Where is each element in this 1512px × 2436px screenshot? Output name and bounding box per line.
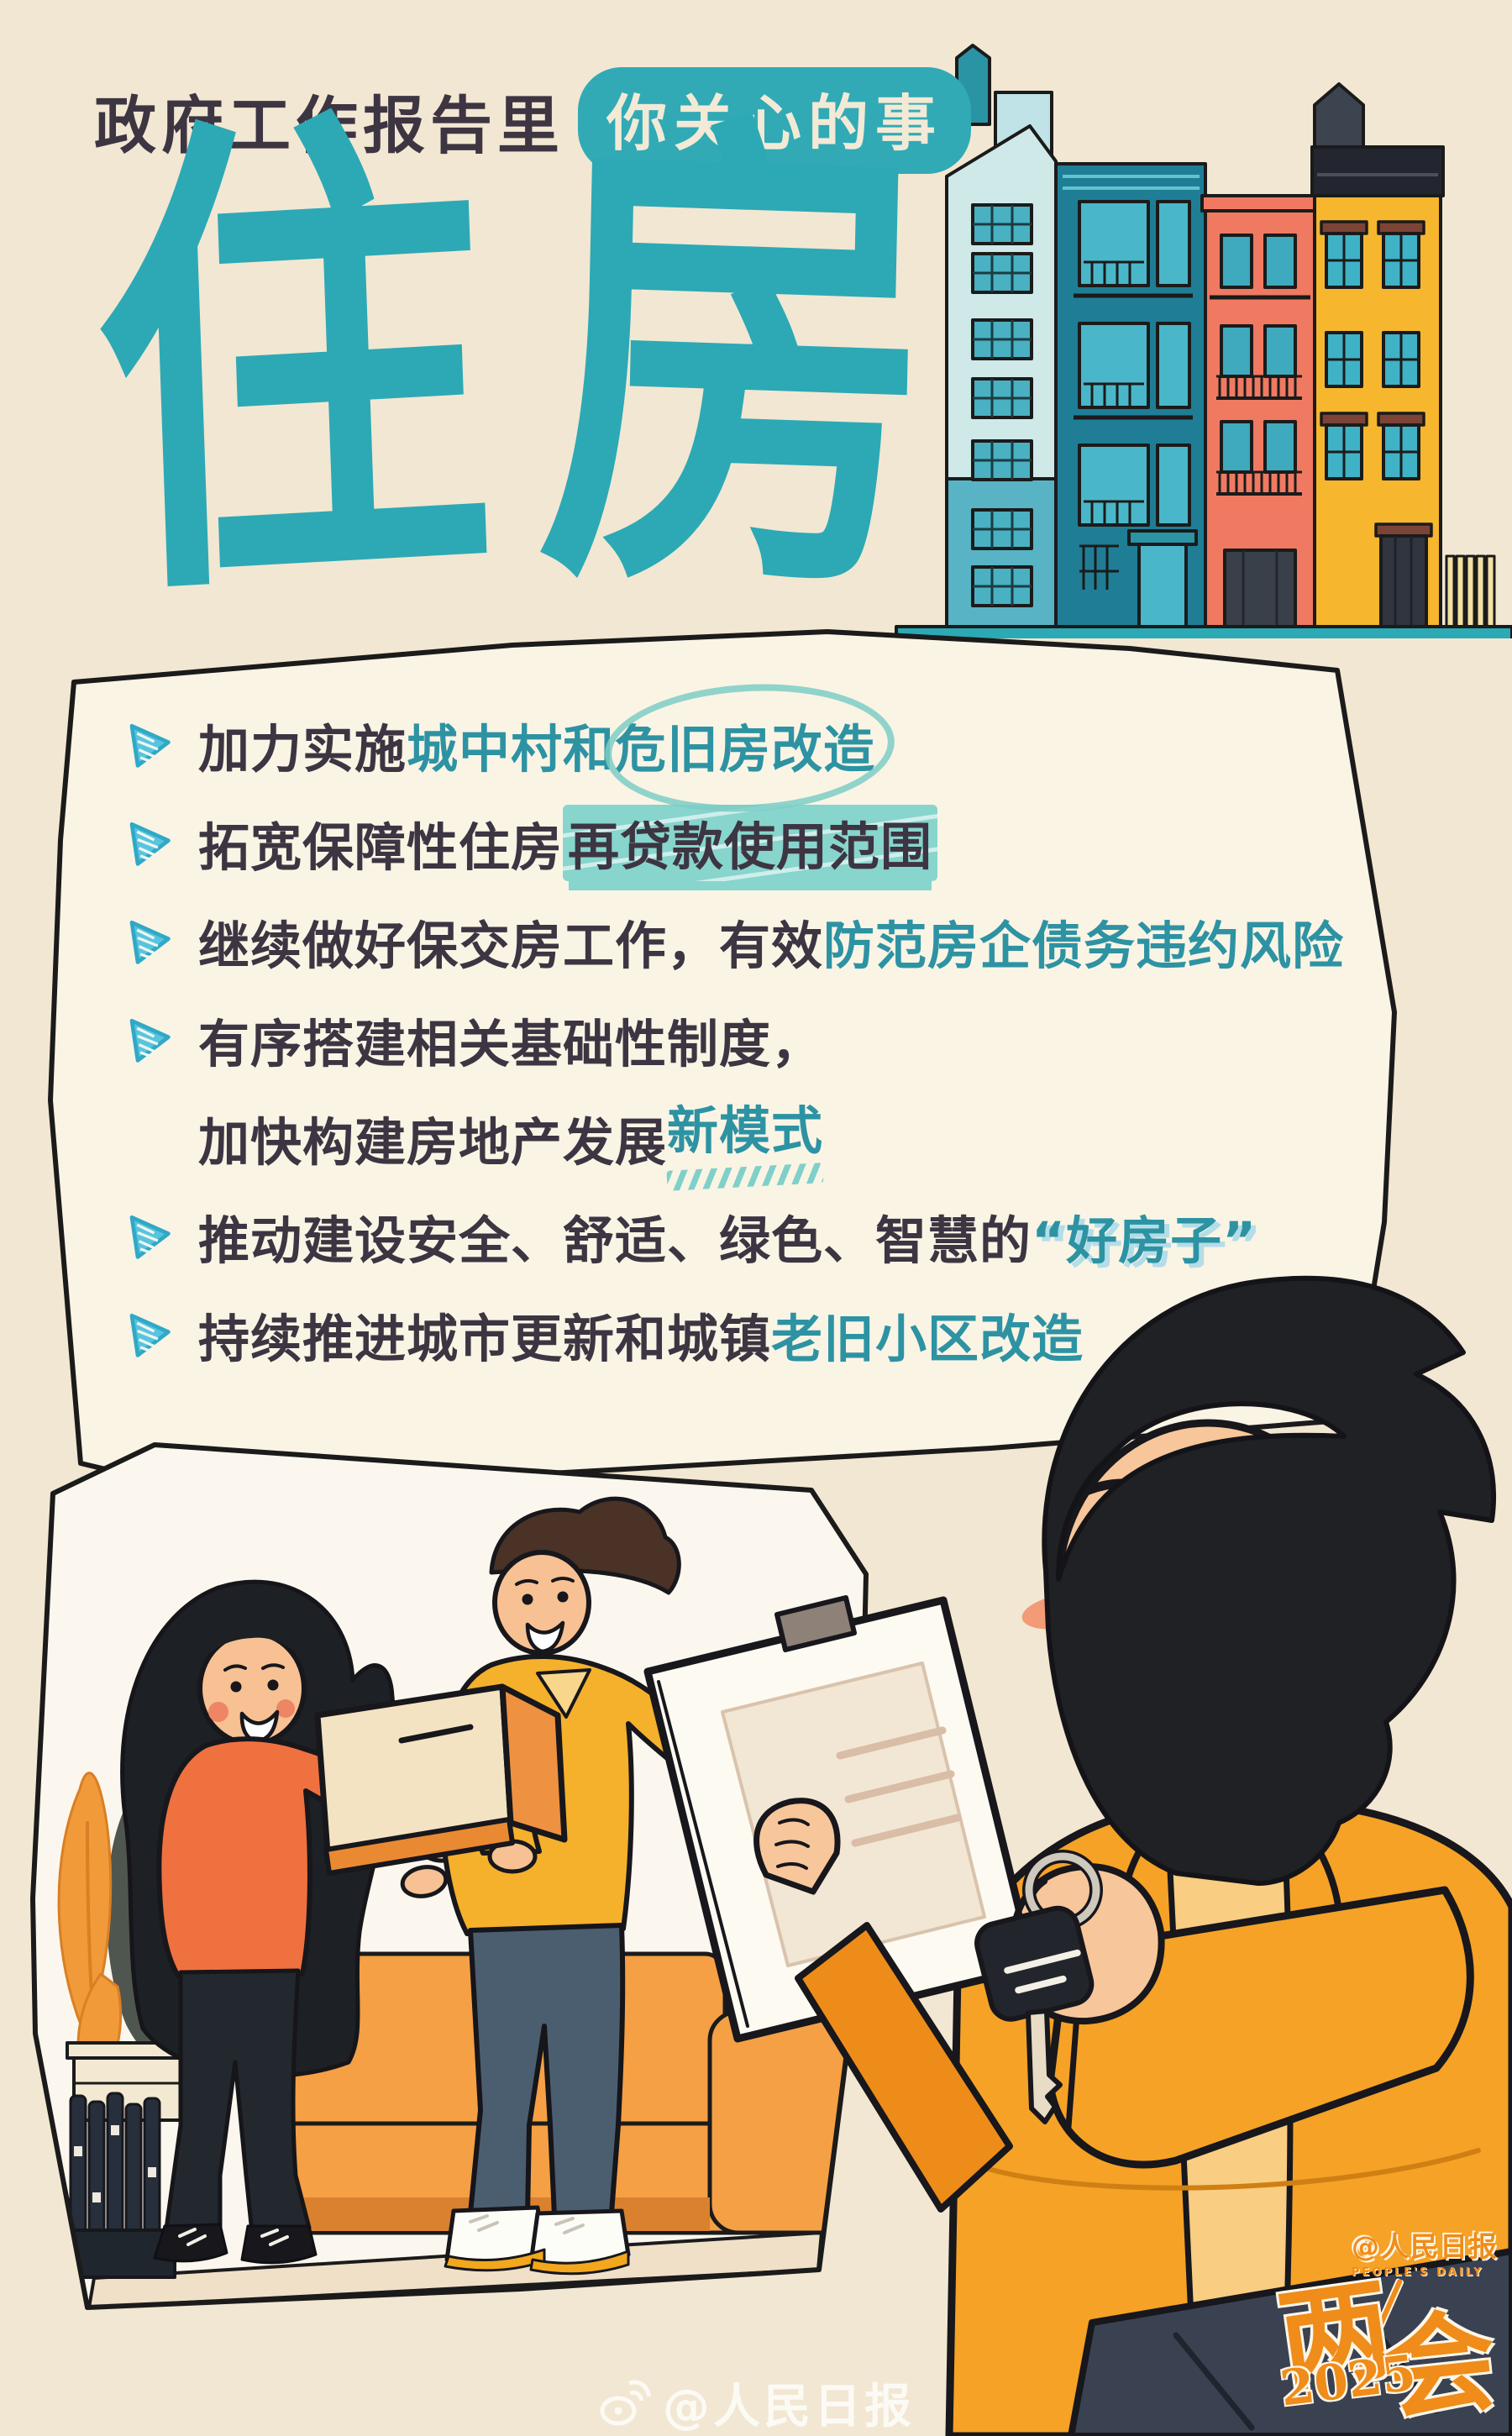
bullet-text-segment: 再贷款使用范围 <box>563 805 937 881</box>
bullet-text-segment: 拓宽保障性住房 <box>198 806 563 880</box>
bullet-text-segment: 加快构建房地产发展 <box>198 1100 667 1175</box>
bullet-text-segment: 危旧房改造 <box>615 707 875 782</box>
bullet-line: 加力实施城中村和危旧房改造 <box>128 711 1388 778</box>
bullet-line: 继续做好保交房工作，有效防范房企债务违约风险 <box>128 907 1388 974</box>
bullet-line: 拓宽保障性住房再贷款使用范围 <box>128 809 1388 876</box>
bullet-text-segment: 加力实施 <box>198 707 407 782</box>
bullet-text-segment: 有序搭建相关基础性制度， <box>198 1002 823 1077</box>
arrow-right-icon <box>128 1210 175 1262</box>
bullet-line: 加快构建房地产发展新模式 <box>128 1104 1388 1171</box>
bullet-text-segment: 继续做好保交房工作，有效 <box>198 904 823 979</box>
poster: 政府工作报告里 你关心的事 住房 加力实施城中村和危旧房改造拓宽保障性住房再贷款… <box>0 0 1512 2436</box>
title-char-2: 房 <box>535 92 938 635</box>
bullet-text-segment: 防范房企债务违约风险 <box>823 904 1344 979</box>
arrow-right-icon <box>128 1013 175 1065</box>
buildings-illustration <box>890 34 1512 638</box>
weibo-icon <box>597 2378 651 2428</box>
page-title: 住房 <box>49 99 981 629</box>
title-char-1: 住 <box>87 89 497 640</box>
footer-watermark: @人民日报 <box>597 2369 915 2436</box>
arrow-right-icon <box>128 915 175 967</box>
bullet-text-segment: 新模式 <box>667 1089 823 1187</box>
bullet-line: 有序搭建相关基础性制度， <box>128 1005 1388 1073</box>
bullet-text-segment: 城中村和 <box>407 707 615 782</box>
arrow-right-icon <box>128 816 175 869</box>
watermark-text: @人民日报 <box>663 2369 915 2436</box>
lianghui-2025-logo: @人民日报 PEOPLE'S DAILY 两 会 2025 <box>1277 2224 1504 2426</box>
arrow-right-icon <box>128 718 175 770</box>
arrow-right-icon <box>128 1308 175 1360</box>
